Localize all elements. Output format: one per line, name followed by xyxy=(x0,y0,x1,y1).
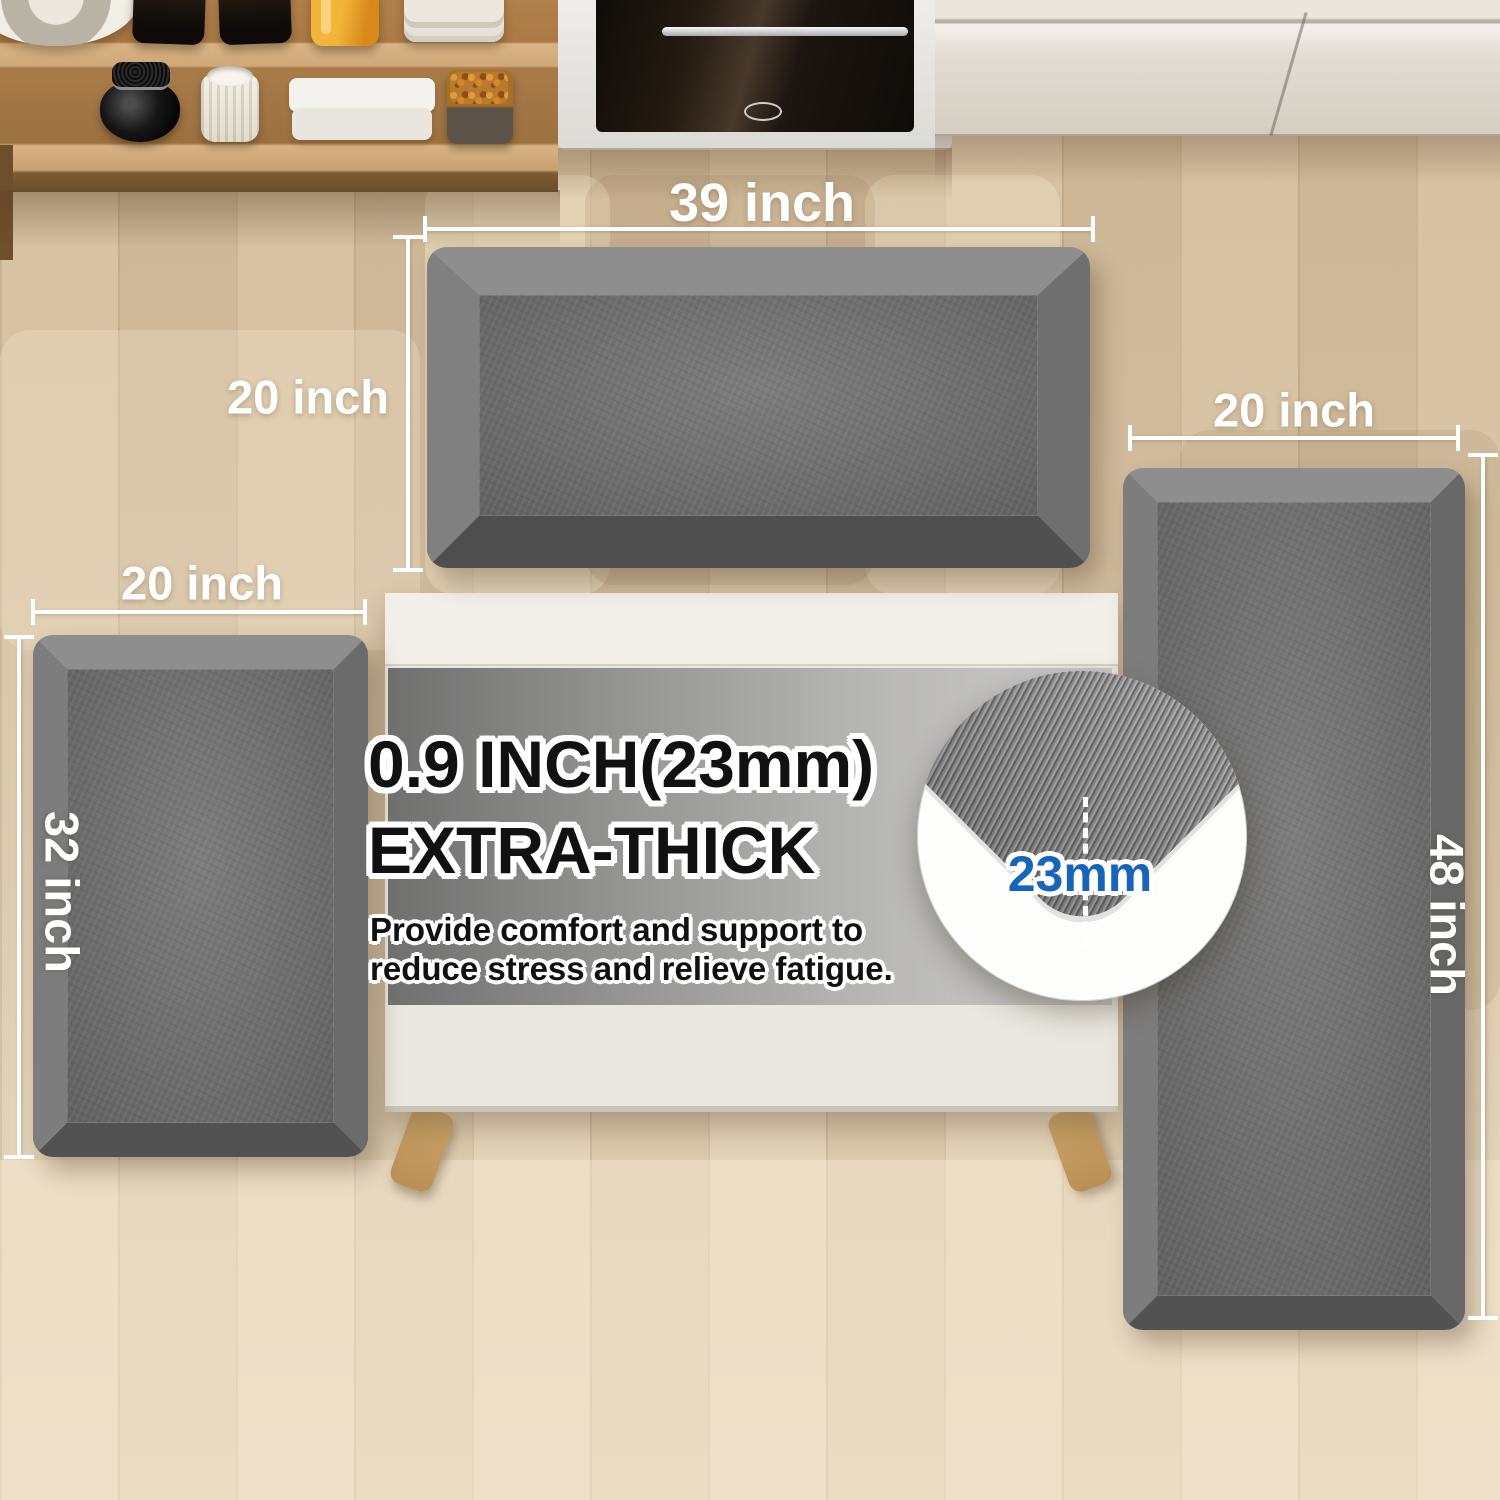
shelf-towels xyxy=(292,108,432,140)
shelf-black-jar-lid xyxy=(112,62,170,90)
wooden-shelf xyxy=(0,0,558,192)
shelf-plate-stack xyxy=(404,0,504,42)
dim-label-top-mat-width: 39 inch xyxy=(669,172,855,234)
cabinet-door-seam xyxy=(1269,12,1307,136)
dim-label-right-mat-width: 20 inch xyxy=(1213,383,1375,438)
dim-line-top-mat-depth xyxy=(406,237,410,570)
oven-handle xyxy=(662,27,908,36)
headline-line1: 0.9 INCH(23mm) xyxy=(368,726,874,802)
product-scene: 23mm 0.9 INCH(23mm) EXTRA-THICK Provide … xyxy=(0,0,1500,1500)
dim-line-right-mat-length xyxy=(1481,455,1485,1318)
dim-label-left-mat-width: 20 inch xyxy=(121,556,283,611)
description-line1: Provide comfort and support to xyxy=(370,911,863,949)
shelf-towels xyxy=(289,78,435,112)
dim-line-left-mat-width xyxy=(33,610,365,614)
shelf-juice-jar xyxy=(311,0,379,46)
headline-line2: EXTRA-THICK xyxy=(368,812,815,888)
shelf-nut-jar xyxy=(447,70,513,144)
table-edge xyxy=(385,593,1118,666)
shelf-black-bottle xyxy=(132,0,206,45)
thickness-inset: 23mm xyxy=(917,671,1247,1001)
dim-label-top-mat-depth: 20 inch xyxy=(227,370,389,425)
description-line2: reduce stress and relieve fatigue. xyxy=(370,950,893,988)
thickness-value-label: 23mm xyxy=(1008,845,1153,903)
dim-label-right-mat-length: 48 inch xyxy=(1420,834,1475,996)
shelf-shadow xyxy=(0,190,560,248)
shelf-bowl xyxy=(0,0,140,46)
table-bottom-edge xyxy=(385,1106,1118,1112)
top-mat xyxy=(427,247,1090,568)
cabinet-shadow xyxy=(935,134,1500,184)
shelf-white-jar xyxy=(201,74,259,142)
dim-line-left-mat-length xyxy=(17,637,21,1157)
dim-label-left-mat-length: 32 inch xyxy=(35,811,90,973)
shelf-black-bottle xyxy=(218,0,292,45)
oven-logo xyxy=(744,102,782,121)
white-cabinet xyxy=(935,0,1500,136)
oven xyxy=(558,0,952,150)
